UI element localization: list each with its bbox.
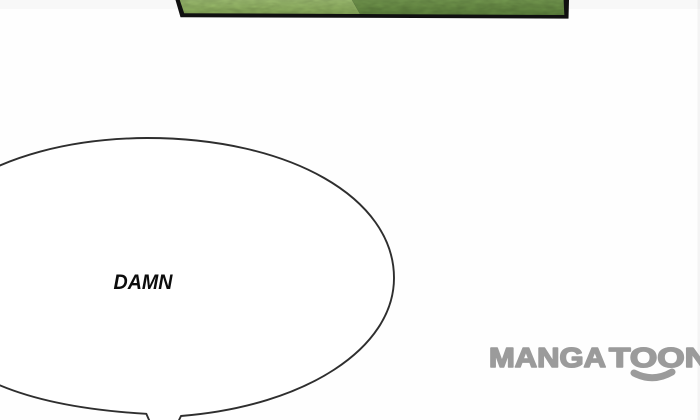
svg-text:DAMN: DAMN [114, 270, 173, 294]
svg-text:TOON: TOON [609, 342, 700, 373]
svg-text:MANGA: MANGA [489, 342, 606, 373]
